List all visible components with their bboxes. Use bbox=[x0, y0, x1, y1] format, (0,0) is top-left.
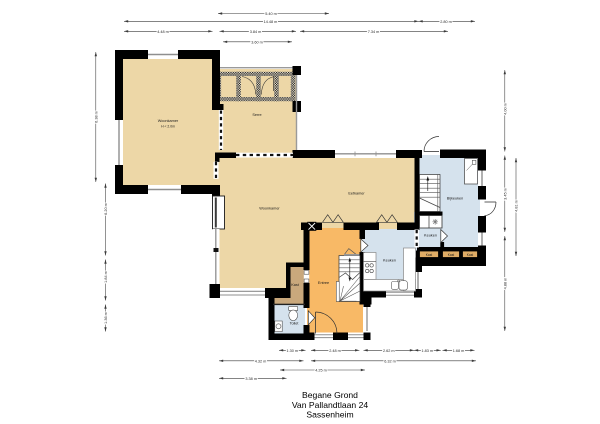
svg-text:4.88 m: 4.88 m bbox=[503, 278, 507, 290]
svg-text:Van Pallandtlaan 24: Van Pallandtlaan 24 bbox=[292, 400, 369, 410]
svg-text:1.30 m: 1.30 m bbox=[286, 349, 298, 353]
svg-text:4.48 m: 4.48 m bbox=[157, 30, 169, 34]
svg-text:Sassenheim: Sassenheim bbox=[306, 410, 353, 420]
svg-text:4.81 m: 4.81 m bbox=[515, 200, 519, 212]
svg-text:4.00 m: 4.00 m bbox=[503, 103, 507, 115]
svg-text:5.40 m: 5.40 m bbox=[265, 12, 277, 16]
svg-text:H < 2.0m: H < 2.0m bbox=[161, 124, 175, 128]
svg-text:4.32 m: 4.32 m bbox=[255, 359, 267, 363]
svg-text:14.48 m: 14.48 m bbox=[264, 20, 278, 24]
svg-text:2.62 m: 2.62 m bbox=[383, 349, 395, 353]
svg-text:3.38 m: 3.38 m bbox=[245, 377, 257, 381]
svg-text:Kast: Kast bbox=[448, 253, 454, 257]
svg-text:3.45 m: 3.45 m bbox=[503, 188, 507, 200]
svg-text:6.20 m: 6.20 m bbox=[104, 203, 108, 215]
svg-text:2.80 m: 2.80 m bbox=[440, 20, 452, 24]
svg-text:1.84 m: 1.84 m bbox=[104, 271, 108, 283]
svg-text:2.48 m: 2.48 m bbox=[329, 349, 341, 353]
svg-text:Entree: Entree bbox=[318, 281, 329, 285]
svg-text:1.68 m: 1.68 m bbox=[453, 349, 465, 353]
svg-text:3.60 m: 3.60 m bbox=[251, 40, 263, 44]
svg-text:6.38 m: 6.38 m bbox=[94, 111, 98, 123]
svg-text:1.83 m: 1.83 m bbox=[421, 349, 433, 353]
svg-text:Woonkamer: Woonkamer bbox=[259, 207, 280, 211]
svg-text:4.25 m: 4.25 m bbox=[315, 369, 327, 373]
svg-text:Begane Grond: Begane Grond bbox=[302, 390, 358, 400]
svg-text:6.32 m: 6.32 m bbox=[384, 359, 396, 363]
svg-text:7.34 m: 7.34 m bbox=[368, 30, 380, 34]
svg-text:Eetkamer: Eetkamer bbox=[348, 191, 365, 195]
svg-text:Keuken: Keuken bbox=[383, 259, 396, 263]
svg-text:3.84 m: 3.84 m bbox=[250, 30, 262, 34]
svg-text:Keuken: Keuken bbox=[424, 234, 437, 238]
svg-text:Bijkeuken: Bijkeuken bbox=[447, 196, 463, 200]
svg-text:Kast: Kast bbox=[467, 253, 473, 257]
svg-text:Woonkamer: Woonkamer bbox=[158, 119, 179, 123]
svg-text:Kast: Kast bbox=[426, 253, 432, 257]
svg-text:Toilet: Toilet bbox=[290, 322, 300, 326]
svg-text:Serre: Serre bbox=[252, 113, 261, 117]
svg-text:Kast: Kast bbox=[291, 283, 300, 287]
svg-text:1.36 m: 1.36 m bbox=[104, 312, 108, 324]
